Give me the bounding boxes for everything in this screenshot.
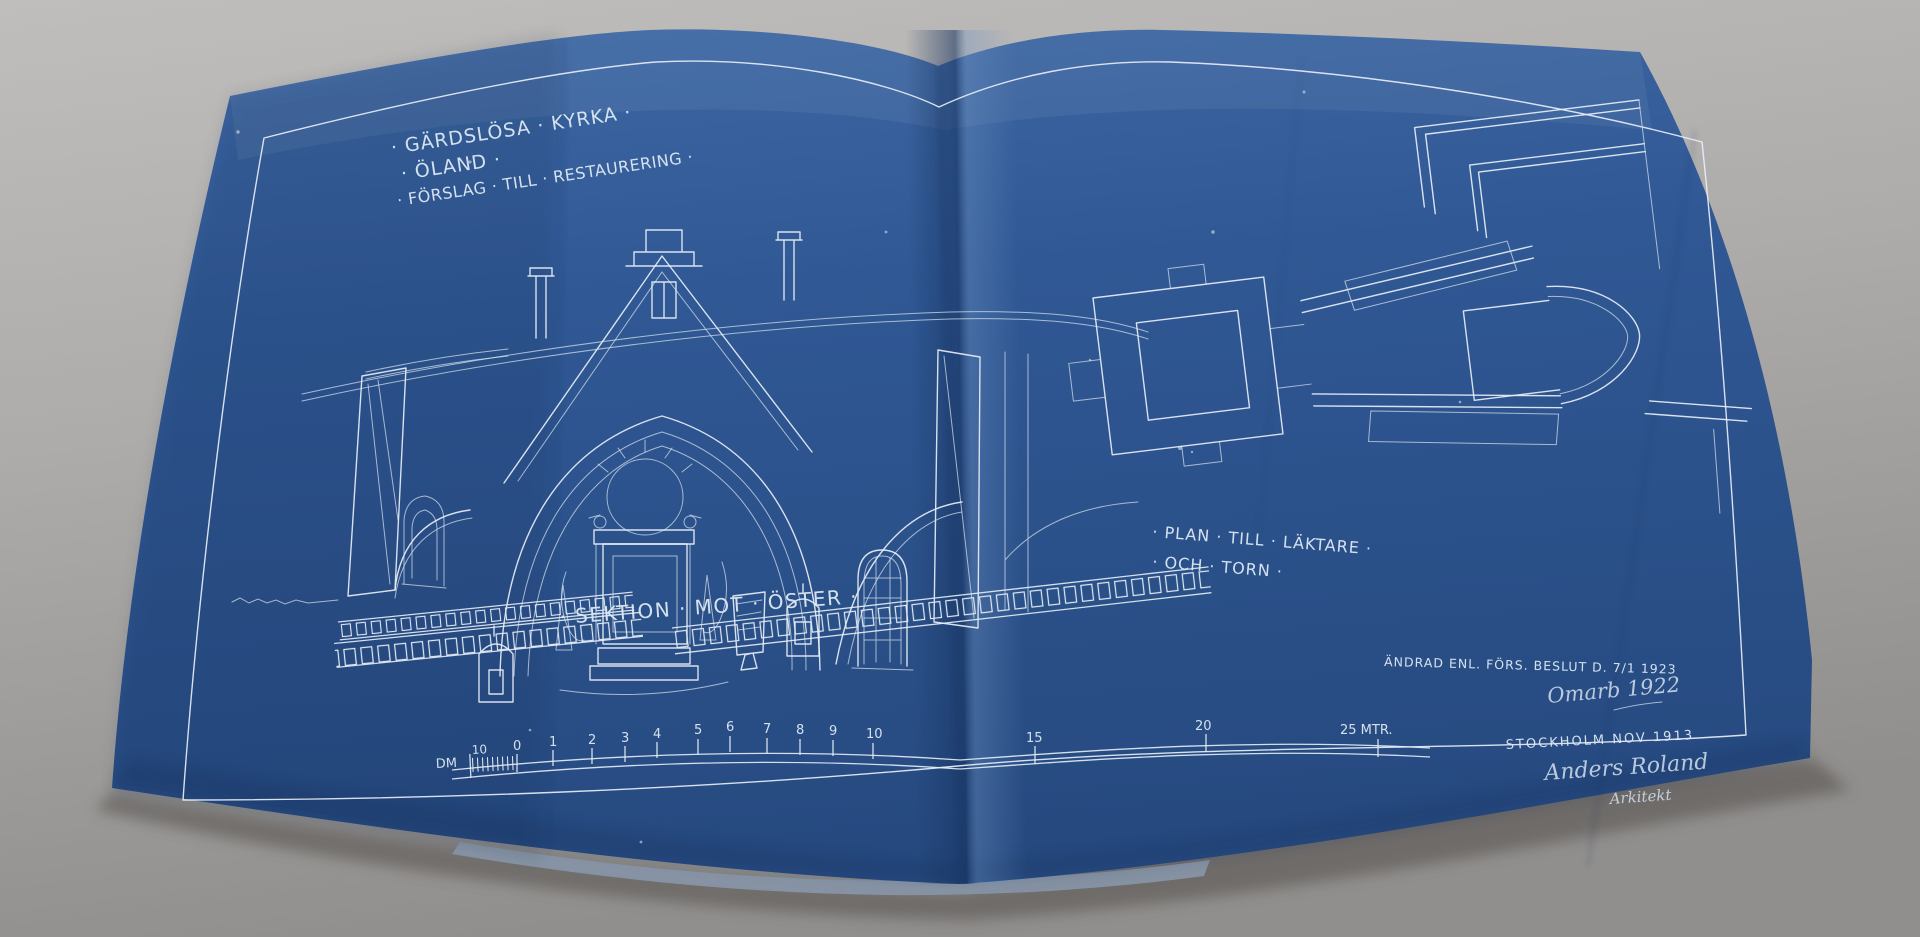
scale-tick-label: 9 — [829, 724, 837, 739]
scale-tick-label: 4 — [653, 727, 661, 742]
blueprint-sheet: DM 10 0 1 2 3 4 5 6 7 8 9 10 15 20 25 MT… — [112, 29, 1812, 884]
scale-unit-label: DM — [435, 756, 457, 772]
scale-tick-label: 1 — [549, 735, 557, 750]
scale-tick-label: 7 — [763, 722, 771, 737]
scale-tick-label: 0 — [513, 739, 521, 754]
scale-tick-label: 8 — [796, 723, 804, 738]
photograph-of-blueprint: DM 10 0 1 2 3 4 5 6 7 8 9 10 15 20 25 MT… — [0, 0, 1920, 937]
scale-pre-zero: 10 — [471, 742, 487, 757]
scale-far-tick-label: 25 MTR. — [1340, 723, 1393, 738]
scale-tick-label: 3 — [621, 731, 629, 746]
scale-far-tick-label: 15 — [1026, 731, 1043, 746]
blueprint-scene: DM 10 0 1 2 3 4 5 6 7 8 9 10 15 20 25 MT… — [0, 0, 1920, 937]
scale-tick-label: 5 — [694, 723, 702, 738]
scale-far-tick-label: 20 — [1195, 719, 1212, 734]
scale-tick-label: 2 — [588, 733, 596, 748]
scale-tick-label: 6 — [726, 720, 734, 735]
scale-tick-label: 10 — [866, 727, 883, 742]
